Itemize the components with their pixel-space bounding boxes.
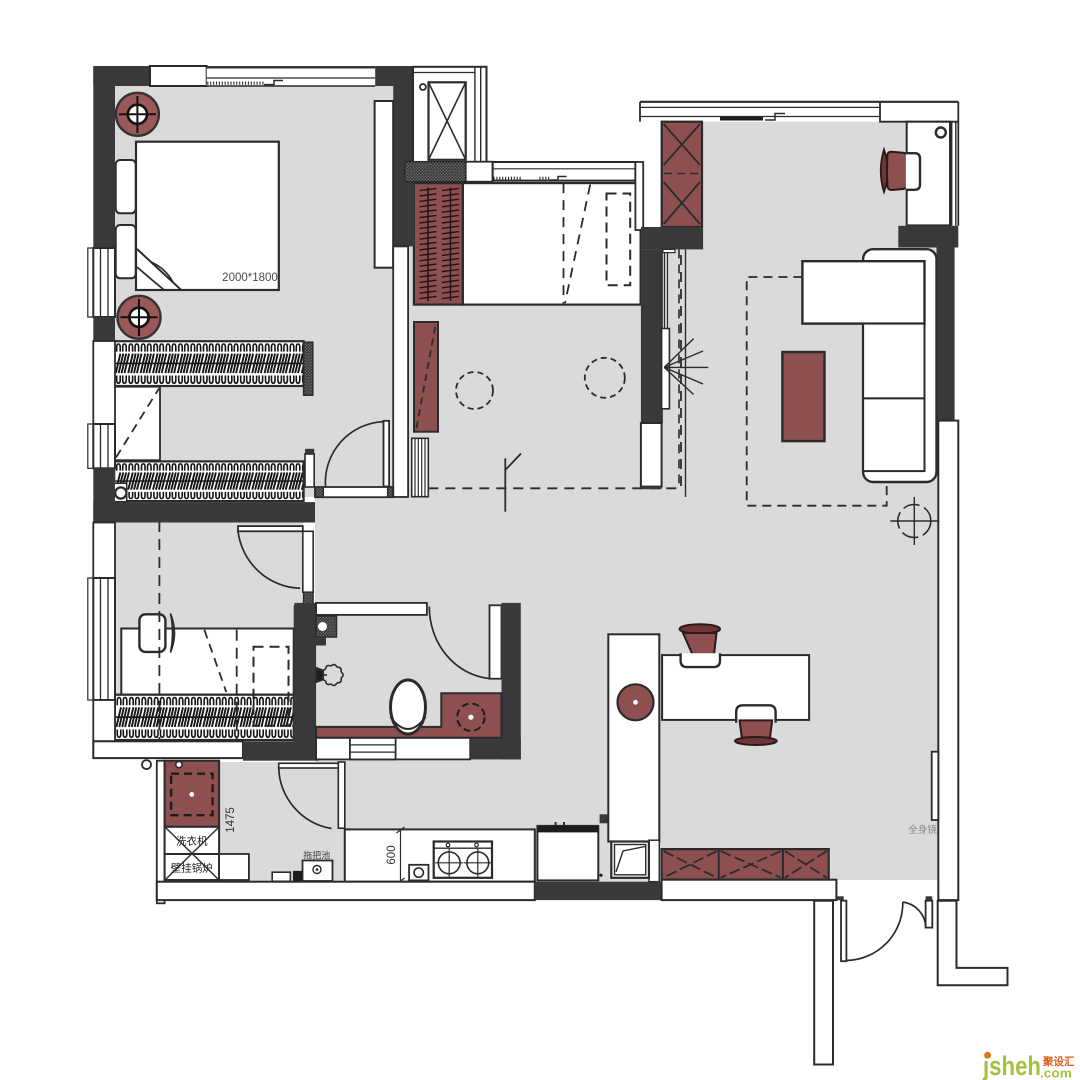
svg-text:壁挂锅炉: 壁挂锅炉 [171, 862, 213, 875]
svg-text:全身镜: 全身镜 [908, 824, 937, 836]
svg-text:2000*1800: 2000*1800 [222, 272, 278, 284]
svg-text:.com: .com [1040, 1066, 1072, 1080]
svg-text:拖把池: 拖把池 [303, 850, 330, 861]
svg-text:洗衣机: 洗衣机 [176, 835, 208, 848]
svg-text:600: 600 [386, 845, 398, 864]
svg-text:1475: 1475 [225, 807, 237, 833]
